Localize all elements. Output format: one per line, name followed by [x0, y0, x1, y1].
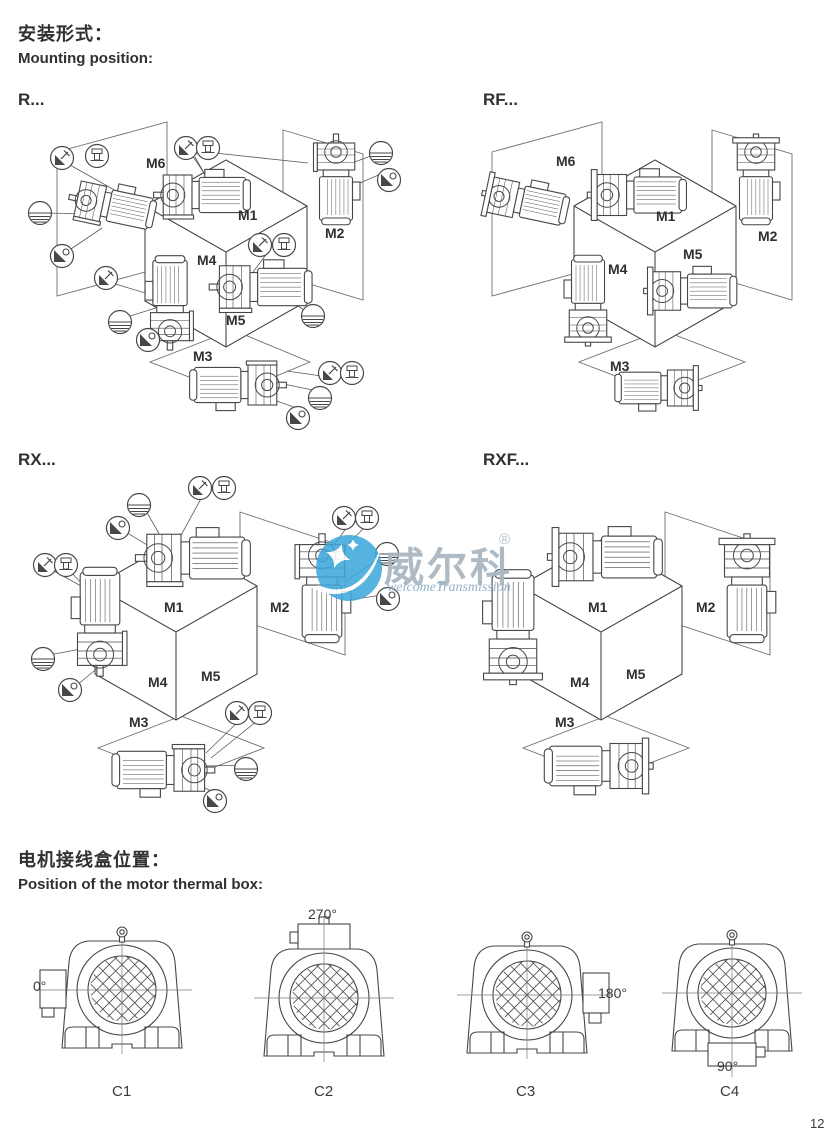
position-label-rf-m5: M5 [683, 246, 702, 262]
position-label-rf-m4: M4 [608, 261, 627, 277]
position-label-r-m6: M6 [146, 155, 165, 171]
position-label-rf-m2: M2 [758, 228, 777, 244]
position-label-rx-m1: M1 [164, 599, 183, 615]
mounting-title-en: Mounting position: [18, 50, 153, 67]
position-label-rxf-m1: M1 [588, 599, 607, 615]
position-label-rf-m3: M3 [610, 358, 629, 374]
variant-label-c1: C1 [112, 1083, 131, 1100]
position-label-rxf-m2: M2 [696, 599, 715, 615]
position-label-rx-m5: M5 [201, 668, 220, 684]
position-label-r-m1: M1 [238, 207, 257, 223]
position-label-rxf-m4: M4 [570, 674, 589, 690]
variant-label-c4: C4 [720, 1083, 739, 1100]
variant-label-c2: C2 [314, 1083, 333, 1100]
angle-label-c2: 270° [308, 906, 337, 922]
page-number: 12 [810, 1116, 824, 1131]
angle-label-c3: 180° [598, 985, 627, 1001]
panel-label-r: R... [18, 90, 44, 110]
position-label-r-m4: M4 [197, 252, 216, 268]
position-label-r-m3: M3 [193, 348, 212, 364]
position-label-rx-m4: M4 [148, 674, 167, 690]
position-label-rx-m3: M3 [129, 714, 148, 730]
position-label-rxf-m3: M3 [555, 714, 574, 730]
variant-label-c3: C3 [516, 1083, 535, 1100]
panel-label-rx: RX... [18, 450, 56, 470]
position-label-rf-m1: M1 [656, 208, 675, 224]
panel-label-rxf: RXF... [483, 450, 529, 470]
position-label-rxf-m5: M5 [626, 666, 645, 682]
watermark-brand-en: welcomeTransmission [387, 580, 511, 596]
thermal-title-zh: 电机接线盒位置： [18, 846, 170, 872]
thermal-title-en: Position of the motor thermal box: [18, 876, 263, 893]
angle-label-c1: 0° [33, 978, 46, 994]
position-label-r-m5: M5 [226, 312, 245, 328]
position-label-rf-m6: M6 [556, 153, 575, 169]
catalog-page: 安装形式： Mounting position: R... RF... RX..… [0, 0, 840, 1143]
watermark-registered-icon: ® [499, 531, 510, 548]
position-label-rx-m2: M2 [270, 599, 289, 615]
panel-label-rf: RF... [483, 90, 518, 110]
angle-label-c4: 90° [717, 1058, 738, 1074]
position-label-r-m2: M2 [325, 225, 344, 241]
mounting-title-zh: 安装形式： [18, 20, 113, 46]
